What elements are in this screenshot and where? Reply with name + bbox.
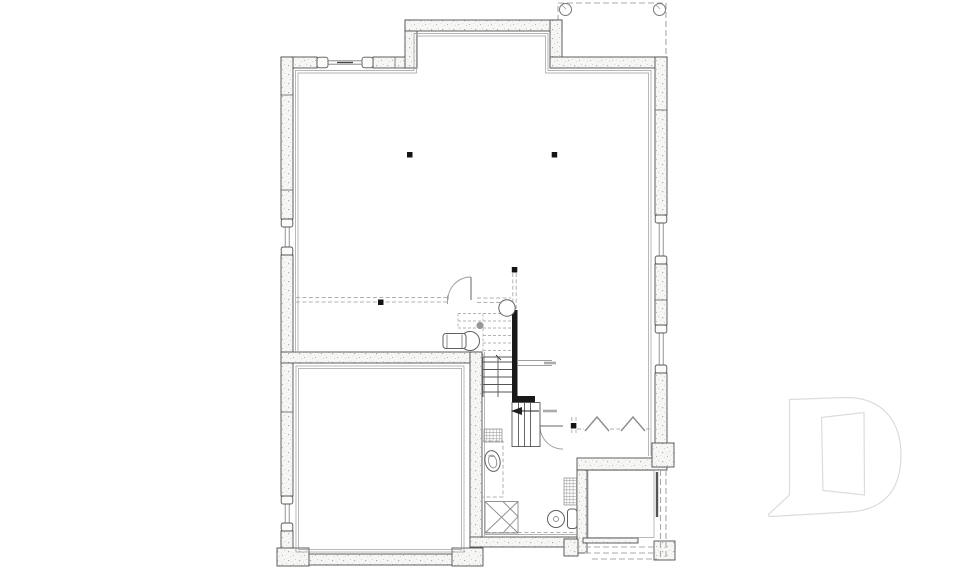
deck-post-icon [654, 4, 666, 16]
hatch-patch [484, 429, 502, 442]
laundry-icon [548, 509, 578, 529]
sink-icon [483, 449, 502, 473]
column-icon [499, 300, 515, 316]
footing-block [564, 539, 578, 556]
sump-pit-icon [485, 502, 518, 534]
footing-block [277, 548, 309, 566]
footing-block [654, 541, 675, 560]
stair-direction-arrow [511, 407, 522, 415]
logo-d-watermark [769, 397, 901, 516]
deck-post-icon [560, 4, 572, 16]
post-icon [407, 152, 413, 158]
stair-wall [512, 310, 518, 402]
beam-symbols [577, 417, 652, 431]
deck-outline [558, 3, 666, 57]
stair-wall [512, 396, 535, 403]
footing-block [452, 548, 483, 566]
post-icon [512, 267, 518, 273]
concrete-walls [277, 20, 675, 566]
door-swing [448, 277, 471, 300]
door-swing [540, 426, 563, 449]
post-icon [378, 300, 384, 306]
floor-plan-drawing [0, 0, 960, 569]
post-icon [552, 152, 558, 158]
hvac-chase-icon [564, 478, 577, 505]
footing-block [652, 443, 674, 467]
post-icon [571, 423, 577, 429]
toilet-icon [443, 332, 480, 351]
floor-drain-icon [476, 322, 483, 329]
floor-plan-canvas [0, 0, 960, 569]
